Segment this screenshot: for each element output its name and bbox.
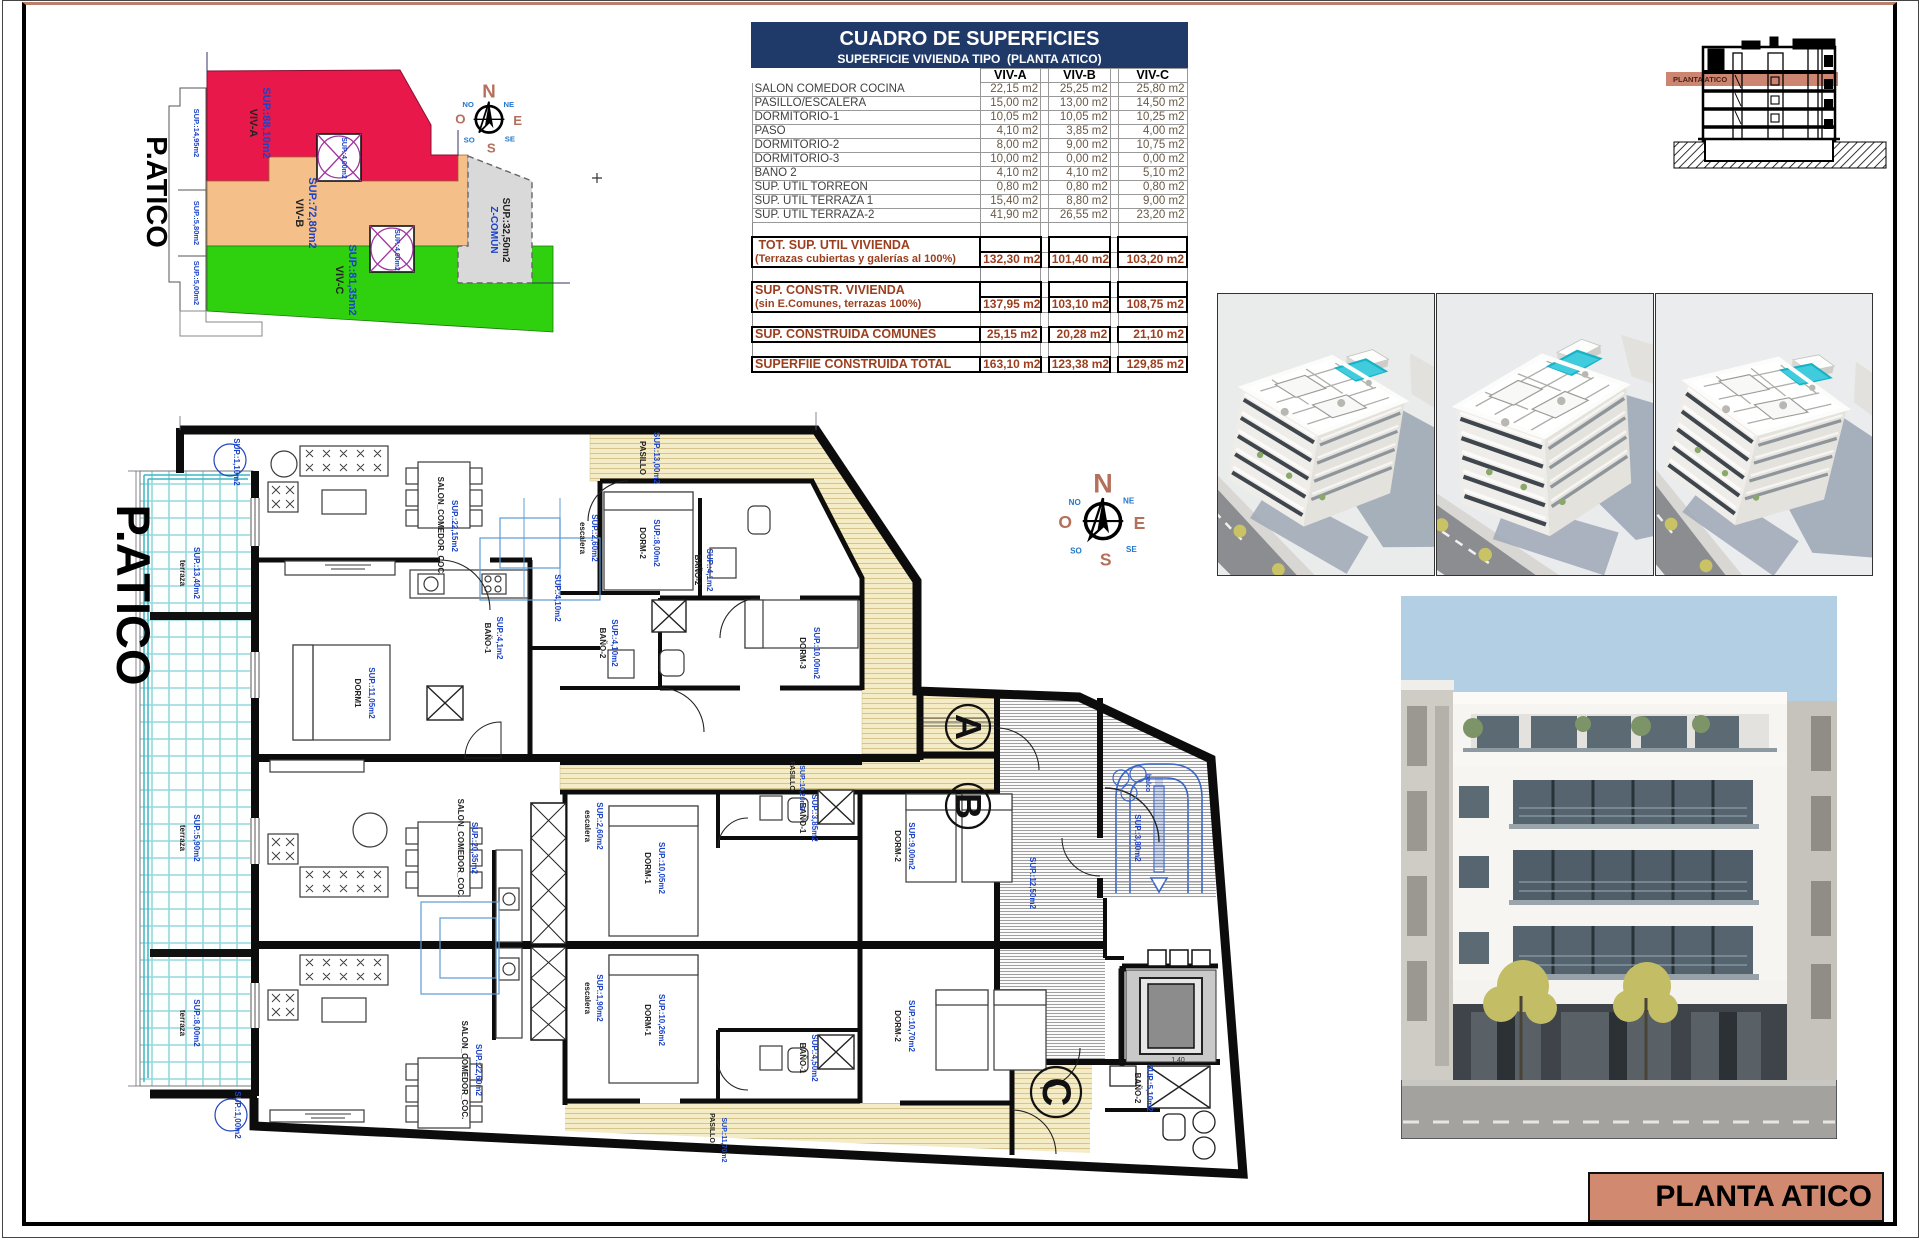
- svg-text:SUP.:10,05m2: SUP.:10,05m2: [657, 842, 666, 894]
- svg-text:NE: NE: [1123, 497, 1135, 506]
- svg-text:PLANTA ATICO: PLANTA ATICO: [1673, 75, 1727, 84]
- svg-text:SUP.:8,00m2: SUP.:8,00m2: [192, 999, 201, 1047]
- svg-text:SALON_COMEDOR_COC.: SALON_COMEDOR_COC.: [456, 799, 465, 898]
- svg-text:VIV-B: VIV-B: [293, 199, 305, 228]
- svg-text:SE: SE: [1126, 545, 1137, 554]
- svg-text:SUP.:11,05m2: SUP.:11,05m2: [367, 667, 376, 719]
- svg-text:BAÑO-2: BAÑO-2: [1133, 1073, 1142, 1104]
- svg-text:DORM-2: DORM-2: [638, 527, 647, 559]
- svg-text:SUP.:12,50m2: SUP.:12,50m2: [1028, 857, 1037, 909]
- svg-text:SUP.:4,1m2: SUP.:4,1m2: [705, 549, 714, 593]
- svg-text:SUP.:4,00m2: SUP.:4,00m2: [340, 137, 347, 179]
- svg-text:SUP.:4,00m2: SUP.:4,00m2: [393, 229, 400, 271]
- svg-text:SUP.:4,1m2: SUP.:4,1m2: [495, 617, 504, 661]
- svg-text:SALON_COMEDOR_COC.: SALON_COMEDOR_COC.: [436, 477, 445, 576]
- svg-text:C: C: [1034, 1078, 1078, 1107]
- svg-text:N: N: [482, 80, 496, 101]
- svg-text:O: O: [1058, 512, 1072, 532]
- svg-text:SUP.:4,10m2: SUP.:4,10m2: [553, 574, 562, 622]
- svg-text:escalera: escalera: [583, 982, 592, 1015]
- svg-text:SUP.:1,90m2: SUP.:1,90m2: [595, 974, 604, 1022]
- svg-text:SO: SO: [464, 135, 475, 144]
- svg-text:SUP.:4,10m2: SUP.:4,10m2: [610, 619, 619, 667]
- svg-text:PASILLO: PASILLO: [788, 761, 795, 791]
- svg-text:NE: NE: [503, 100, 514, 109]
- svg-text:Z-COMÚN: Z-COMÚN: [488, 206, 501, 253]
- svg-text:DORM-2: DORM-2: [893, 1010, 902, 1042]
- svg-text:SALON_COMEDOR_COC.: SALON_COMEDOR_COC.: [460, 1021, 469, 1120]
- svg-text:SUP.:1,00m2: SUP.:1,00m2: [233, 1091, 242, 1139]
- svg-text:SUP.:22,60m2: SUP.:22,60m2: [474, 1044, 483, 1096]
- svg-text:SO: SO: [1070, 546, 1082, 555]
- svg-text:SUP.:10,70m2: SUP.:10,70m2: [907, 1000, 916, 1052]
- svg-text:SUP.:10,00m2: SUP.:10,00m2: [812, 627, 821, 679]
- svg-text:A: A: [948, 714, 989, 740]
- svg-text:P.ATICO: P.ATICO: [140, 136, 172, 248]
- svg-text:SUP.:20,35m2: SUP.:20,35m2: [470, 822, 479, 874]
- svg-text:DORM-2: DORM-2: [893, 830, 902, 862]
- svg-text:SUP.:88,10m2: SUP.:88,10m2: [260, 87, 272, 158]
- svg-text:BAÑO-1: BAÑO-1: [483, 623, 492, 654]
- svg-text:SUP.:5,00m2: SUP.:5,00m2: [192, 261, 201, 305]
- svg-text:PASILLO: PASILLO: [708, 1113, 715, 1143]
- svg-text:SUP.:2,60m2: SUP.:2,60m2: [595, 802, 604, 850]
- svg-text:terraza: terraza: [178, 825, 187, 852]
- svg-text:1,40: 1,40: [1171, 1057, 1185, 1064]
- svg-text:SUP.:5,90m2: SUP.:5,90m2: [192, 814, 201, 862]
- svg-text:N: N: [1093, 469, 1113, 499]
- svg-text:DORM-3: DORM-3: [798, 637, 807, 669]
- svg-text:escalera: escalera: [578, 522, 587, 555]
- svg-text:VIV-A: VIV-A: [247, 109, 259, 138]
- svg-text:SUP.:13,40m2: SUP.:13,40m2: [192, 547, 201, 599]
- svg-text:SUP.:22,15m2: SUP.:22,15m2: [450, 500, 459, 552]
- svg-text:BAÑO-1: BAÑO-1: [798, 1043, 807, 1074]
- svg-text:BAÑO-2: BAÑO-2: [693, 555, 702, 586]
- svg-text:P.ATICO: P.ATICO: [107, 504, 160, 685]
- svg-text:SUP.:72,80m2: SUP.:72,80m2: [306, 177, 318, 248]
- svg-text:PASILLO: PASILLO: [638, 441, 647, 475]
- svg-text:SUP.:3,80m2: SUP.:3,80m2: [1133, 814, 1142, 862]
- svg-text:SUP.:81,35m2: SUP.:81,35m2: [346, 244, 358, 315]
- svg-text:NO: NO: [462, 100, 474, 109]
- svg-text:B: B: [948, 793, 989, 819]
- svg-text:SUP.:3,85m2: SUP.:3,85m2: [810, 794, 819, 842]
- svg-text:DORM-1: DORM-1: [643, 1004, 652, 1036]
- svg-text:SUP.:8,00m2: SUP.:8,00m2: [652, 519, 661, 567]
- svg-text:BAÑO-2: BAÑO-2: [598, 628, 607, 659]
- svg-text:terraza: terraza: [178, 1010, 187, 1037]
- svg-text:SE: SE: [505, 134, 515, 143]
- svg-text:DORM-1: DORM-1: [643, 852, 652, 884]
- svg-text:NO: NO: [1069, 498, 1081, 507]
- svg-text:SUP.:14,95m2: SUP.:14,95m2: [192, 109, 201, 158]
- svg-text:VIV-C: VIV-C: [333, 266, 345, 295]
- svg-text:SUP.:2,60m2: SUP.:2,60m2: [590, 514, 599, 562]
- svg-text:SUP.:4,50m2: SUP.:4,50m2: [810, 1034, 819, 1082]
- svg-text:SUP.:32,50m2: SUP.:32,50m2: [500, 198, 511, 263]
- svg-text:SUP.:10,20m2: SUP.:10,20m2: [798, 765, 805, 811]
- svg-text:O: O: [455, 112, 465, 127]
- svg-text:SUP.:9,00m2: SUP.:9,00m2: [907, 822, 916, 870]
- svg-text:SUP.:5,80m2: SUP.:5,80m2: [192, 201, 201, 245]
- svg-text:SUP.:1,10m2: SUP.:1,10m2: [232, 438, 241, 486]
- svg-text:E: E: [1134, 513, 1146, 533]
- svg-text:terraza: terraza: [178, 560, 187, 587]
- svg-text:S: S: [487, 140, 496, 155]
- svg-text:E: E: [513, 113, 522, 128]
- svg-text:SUP.:10,26m2: SUP.:10,26m2: [657, 994, 666, 1046]
- svg-text:escalera: escalera: [583, 810, 592, 843]
- svg-text:SUP.:11,70m2: SUP.:11,70m2: [720, 1117, 727, 1162]
- svg-text:DORM1: DORM1: [353, 679, 362, 708]
- svg-text:SUP.:5,10m2: SUP.:5,10m2: [1145, 1064, 1154, 1112]
- svg-text:S: S: [1100, 550, 1112, 570]
- svg-text:SUP.:13,00m2: SUP.:13,00m2: [652, 432, 661, 484]
